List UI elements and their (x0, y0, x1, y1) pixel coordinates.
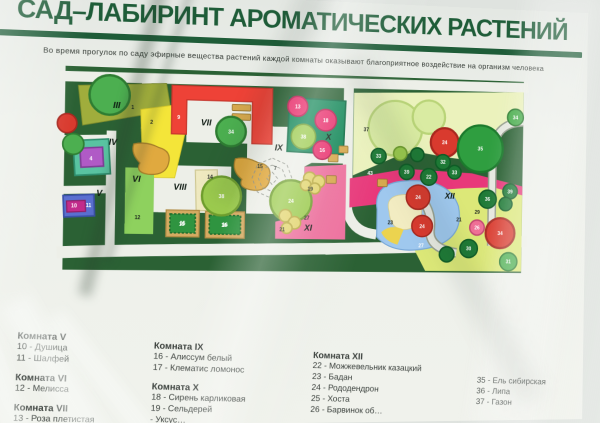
plant-number-label: 18 (323, 118, 329, 124)
room-numeral-label: XII (444, 191, 455, 201)
plant-number-label: 38 (301, 134, 307, 140)
plant-number-label: 39 (404, 170, 410, 176)
plant-number-label: 34 (513, 115, 518, 121)
plant-number-label: 9 (177, 115, 180, 121)
plant-number-label: 16 (319, 148, 325, 154)
room-numeral-label: VIII (173, 182, 187, 192)
plant-number-label: 43 (367, 171, 373, 177)
bench-icon (326, 176, 336, 184)
room-numeral-label: VI (132, 174, 141, 184)
plant-number-label: 15 (179, 222, 185, 228)
tree-icon (439, 247, 454, 262)
tree-icon (63, 133, 84, 154)
plant-number-label: 34 (228, 129, 234, 135)
plant-number-label: 13 (295, 104, 301, 110)
plant-number-label: 1 (131, 105, 134, 111)
plant-number-label: 31 (506, 260, 511, 266)
plant-number-label: 15 (257, 164, 263, 170)
plant-number-label: 35 (478, 147, 483, 153)
legend-column-2: Комната IX 16 - Алиссум белый 17 - Клема… (150, 332, 331, 423)
plant-number-label: 30 (466, 247, 471, 253)
room-numeral-label: XI (303, 223, 313, 233)
plant-number-label: 22 (426, 175, 432, 181)
tree-icon (393, 147, 407, 161)
plant-number-label: 4 (89, 156, 92, 162)
tree-icon (499, 197, 512, 211)
plant-number-label: 27 (304, 216, 310, 222)
room-numeral-label: IX (275, 143, 284, 153)
plant-number-label: 24 (419, 224, 425, 230)
plant-number-label: 24 (442, 141, 448, 147)
plant-number-label: 2 (150, 120, 153, 126)
legend-column-1: Комната V 10 - Душица 11 - Шалфей Комнат… (13, 322, 155, 423)
room-numeral-label: VII (201, 117, 212, 127)
plant-number-label: 34 (497, 231, 502, 237)
photo-of-garden-sign: САД–ЛАБИРИНТ АРОМАТИЧЕСКИХ РАСТЕНИЙ Во в… (0, 0, 600, 423)
plant-number-label: 33 (376, 154, 382, 160)
legend-item: 13 - Роза плетистая (13, 412, 150, 423)
plant-number-label: 24 (415, 195, 421, 201)
plant-number-label: 39 (507, 189, 512, 195)
plant-number-label: 38 (219, 194, 225, 200)
tree-icon (411, 148, 425, 162)
plant-number-label: 10 (71, 204, 77, 210)
tree-icon (57, 113, 77, 133)
legend-item: 12 - Мелисса (14, 382, 151, 397)
plant-number-label: 37 (364, 127, 370, 133)
legend-column-3: Комната XII 22 - Можжевельник казацкий 2… (310, 342, 496, 419)
plant-number-label: 12 (134, 215, 140, 221)
room-numeral-label: III (113, 100, 121, 110)
plant-number-label: 11 (86, 203, 92, 209)
plant-number-label: 23 (388, 220, 394, 226)
room-numeral-label: IV (109, 137, 119, 147)
plant-number-label: 16 (221, 223, 227, 229)
plant-number-label: 7 (274, 166, 277, 172)
plant-number-label: 19 (307, 187, 313, 193)
tree-icon (89, 75, 130, 116)
plant-number-label: 14 (207, 175, 213, 181)
garden-map: 1516 34381318381624243534333233392224243… (0, 63, 587, 330)
plant-number-label: 26 (474, 226, 479, 232)
legend-column-4: 35 - Ель сибирская 36 - Липа 37 - Газон (476, 375, 589, 410)
plant-number-label: 33 (452, 170, 458, 176)
plant-number-label: 21 (279, 227, 285, 233)
poster: САД–ЛАБИРИНТ АРОМАТИЧЕСКИХ РАСТЕНИЙ Во в… (0, 0, 588, 423)
plant-number-label: 21 (456, 217, 462, 223)
bench-icon (339, 146, 348, 153)
plant-number-label: 27 (418, 243, 424, 249)
bench-icon (377, 179, 387, 187)
plant-number-label: 29 (475, 210, 480, 216)
hedge-beds-layer: 1516 (166, 210, 245, 238)
bench-icon (232, 104, 251, 111)
plant-number-label: 24 (288, 199, 294, 205)
plant-number-label: 36 (485, 197, 490, 203)
plant-number-label: 32 (440, 160, 446, 166)
